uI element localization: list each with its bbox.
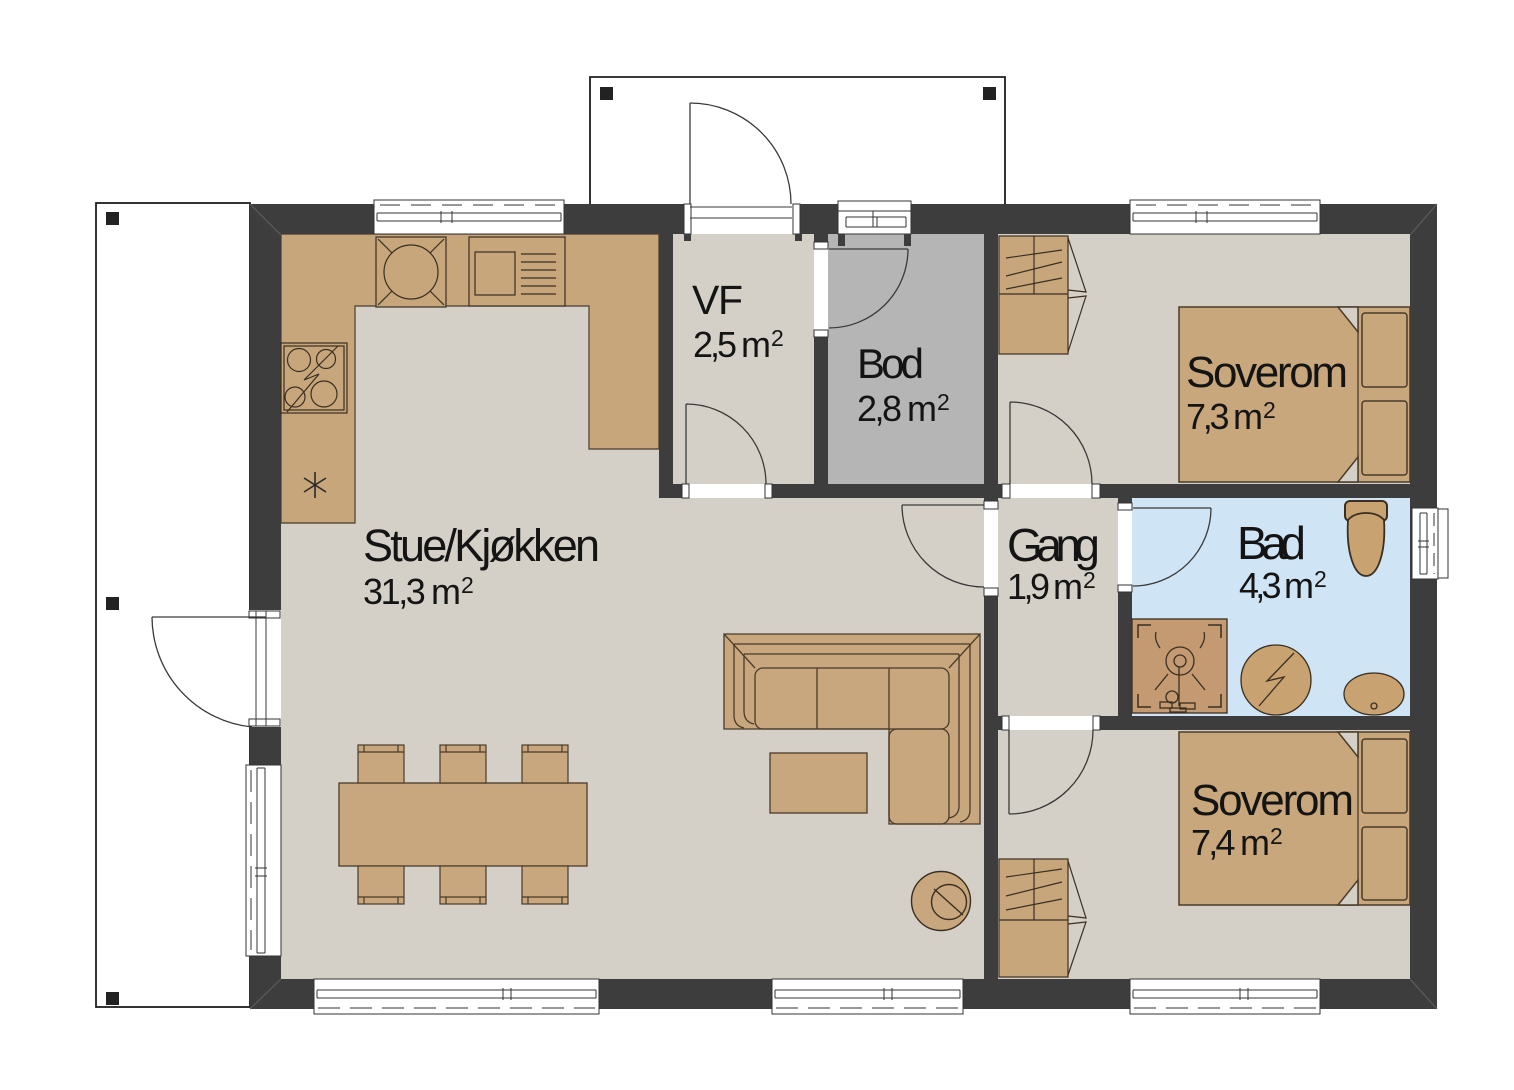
- svg-text:31,3 m2: 31,3 m2: [363, 571, 474, 612]
- svg-text:Bod: Bod: [857, 340, 924, 387]
- svg-text:Soverom: Soverom: [1191, 776, 1354, 825]
- svg-text:Soverom: Soverom: [1186, 348, 1348, 397]
- svg-text:Stue/Kjøkken: Stue/Kjøkken: [363, 520, 600, 571]
- svg-text:4,3 m2: 4,3 m2: [1239, 565, 1327, 606]
- svg-text:2,8 m2: 2,8 m2: [857, 388, 950, 429]
- svg-text:VF: VF: [692, 277, 743, 323]
- svg-text:7,4 m2: 7,4 m2: [1191, 822, 1283, 863]
- svg-text:7,3 m2: 7,3 m2: [1186, 396, 1276, 437]
- svg-text:Gang: Gang: [1007, 519, 1100, 571]
- svg-text:1,9 m2: 1,9 m2: [1007, 566, 1096, 607]
- svg-text:2,5 m2: 2,5 m2: [693, 324, 784, 365]
- svg-text:Bad: Bad: [1237, 517, 1306, 569]
